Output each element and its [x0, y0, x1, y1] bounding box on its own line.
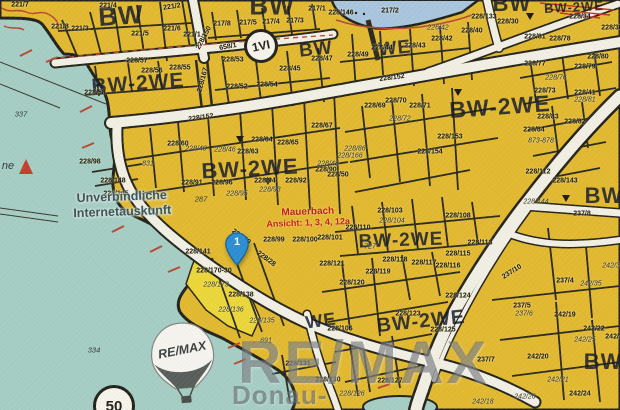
parcel-label: 242/23: [605, 334, 620, 341]
parcel-label: 228/96: [211, 180, 232, 187]
parcel-label: 221/6: [163, 26, 181, 33]
parcel-label: 217/2: [381, 8, 399, 15]
circle-marker: 50: [93, 385, 135, 410]
parcel-label: 242/25: [574, 337, 595, 344]
parcel-label: 228/98: [79, 159, 100, 166]
parcel-label: 228/130: [315, 377, 340, 384]
parcel-label: 228/100: [292, 237, 317, 244]
parcel-label: 228/78: [549, 36, 570, 43]
parcel-label: 228/117: [412, 260, 437, 267]
parcel-label: 228/138: [228, 292, 253, 299]
parcel-label: 217/5: [239, 20, 257, 27]
parcel-label: 228/34: [569, 14, 590, 21]
parcel-label: 221/5: [131, 31, 149, 38]
parcel-label: 228/106: [327, 326, 352, 333]
parcel-label: 228/63: [237, 149, 258, 156]
parcel-label: 228/55: [169, 65, 190, 72]
parcel-label: 873-878: [528, 138, 554, 145]
zone-label: BW: [585, 183, 620, 209]
parcel-label: 228/152: [188, 113, 214, 123]
parcel-label: 228/72: [389, 116, 410, 123]
water-label: 287: [195, 195, 208, 204]
parcel-label: 228/64: [251, 137, 272, 144]
parcel-label: 228/120: [339, 280, 364, 287]
parcel-label: 228/28: [255, 250, 276, 268]
parcel-label: 228/146: [328, 10, 353, 17]
parcel-label: 228/143: [552, 178, 577, 185]
disclaimer-text: Unverbindliche Internetauskunft: [73, 188, 172, 220]
parcel-label: 228/144: [523, 199, 548, 206]
parcel-label: 228/41: [574, 90, 595, 97]
parcel-label: 228/94: [254, 178, 275, 185]
parcel-label: 242/18: [472, 399, 493, 406]
parcel-label: 217/8: [213, 21, 231, 28]
parcel-label: 228/112: [526, 169, 551, 176]
parcel-label: 228/43: [404, 43, 425, 50]
parcel-label: 228/104: [379, 218, 404, 225]
parcel-label: 228/54: [256, 82, 277, 89]
mauerbach-note: Mauerbach Ansicht: 1, 3, 4, 12a: [266, 205, 350, 229]
parcel-label: 228/148: [100, 178, 125, 185]
parcel-label: 242/19: [554, 312, 575, 319]
disclaimer-line2: Internetauskunft: [73, 202, 171, 219]
parcel-label: 237/5: [513, 303, 531, 310]
parcel-label: 228/67: [311, 123, 332, 130]
parcel-label: 242/20: [527, 354, 548, 361]
parcel-label: 228/65: [277, 140, 298, 147]
parcel-label: 228/45: [279, 66, 300, 73]
parcel-label: 228/79: [574, 64, 595, 71]
parcel-label: 228/49: [347, 52, 368, 59]
parcel-label: 228/57: [126, 58, 147, 65]
cadastral-map: BWBWBWWEBWBW-2WEBW-2WEBW-2WEBW-2WEBW-2WE…: [0, 0, 620, 410]
parcel-label: 228/121: [319, 261, 344, 268]
parcel-label: 221/4: [99, 3, 117, 10]
parcel-label: 228/40: [185, 146, 206, 153]
parcel-label: 228/93: [259, 187, 280, 194]
remax-balloon-logo: RE/MAX: [147, 320, 219, 406]
parcel-label: 237/7: [477, 357, 495, 364]
parcel-label: 228/70: [385, 98, 406, 105]
parcel-label: 228/80: [587, 54, 608, 61]
parcel-label: 242/26: [514, 394, 535, 401]
parcel-label: 228/119: [366, 269, 391, 276]
parcel-label: 228/124: [445, 293, 470, 300]
parcel-label: 228/91: [181, 180, 202, 187]
parcel-label: 237/6: [515, 311, 533, 318]
parcel-label: 228/52: [226, 84, 247, 91]
parcel-label: 228/44: [371, 45, 392, 52]
parcel-label: 228/141: [185, 249, 210, 256]
parcel-label: 228/95: [226, 191, 247, 198]
parcel-label: 228/153: [437, 134, 462, 141]
parcel-label: 228/73: [534, 88, 555, 95]
zone-label: BW-: [584, 349, 620, 375]
parcel-label: 228/81: [574, 97, 595, 104]
parcel-label: 242/22: [583, 326, 604, 333]
water-label: ne: [2, 160, 14, 172]
parcel-label: 242/24: [569, 391, 590, 398]
parcel-label: 242/35: [580, 281, 601, 288]
parcel-label: 228/133: [471, 14, 496, 21]
parcel-label: 228/123: [395, 311, 420, 318]
parcel-label: 242/21: [547, 377, 568, 384]
parcel-label: 228/40: [461, 28, 482, 35]
parcel-label: 228/154: [417, 149, 442, 156]
parcel-label: 228/92: [285, 178, 306, 185]
parcel-label: 228/30: [497, 19, 518, 26]
parcel-label: 228/131: [285, 361, 310, 368]
parcel-label: 658/1: [219, 42, 237, 52]
parcel-label: 237/10: [501, 263, 523, 280]
parcel-label: 228/58: [84, 90, 105, 97]
parcel-label: 228/36: [601, 25, 620, 32]
pin-number: 1: [225, 236, 249, 248]
parcel-label: 228/170-30: [196, 268, 231, 275]
parcel-label: 221/1: [183, 32, 201, 39]
parcel-label: 228/103: [377, 208, 402, 215]
parcel-label: 228/167: [196, 67, 209, 93]
water-label: 334: [88, 346, 101, 355]
parcel-label: 228/108: [445, 213, 470, 220]
parcel-label: 237/8: [573, 211, 591, 218]
parcel-label: 228/127: [377, 378, 402, 385]
location-pin[interactable]: 1: [225, 232, 249, 266]
parcel-label: 228/69: [364, 103, 385, 110]
water-label: 337: [15, 110, 28, 119]
parcel-label: 228/48: [317, 161, 338, 168]
parcel-label: 217/1: [308, 6, 326, 13]
parcel-label: 228/136: [218, 307, 243, 314]
parcel-label: 228/86: [344, 146, 365, 153]
parcel-label: 228/53: [222, 57, 243, 64]
parcel-label: 221/8: [51, 24, 69, 31]
parcel-label: 237/4: [556, 278, 574, 285]
parcel-label: 228/47: [311, 56, 332, 63]
parcel-label: 228/135: [249, 318, 274, 325]
parcel-label: 217/4: [262, 19, 280, 26]
parcel-label: 228/118: [383, 257, 408, 264]
parcel-label: 226/42: [427, 25, 448, 32]
parcel-label: 228/77: [524, 61, 545, 68]
parcel-label: 228/42: [431, 36, 452, 43]
parcel-label: 831: [142, 161, 154, 168]
parcel-label: 228/101: [317, 235, 342, 242]
parcel-label: 228/166: [337, 153, 362, 160]
parcel-label: 228/115: [446, 251, 471, 258]
parcel-label: 228/83: [537, 114, 558, 121]
circle-marker: 1VI: [244, 29, 278, 63]
parcel-label: 228/152: [379, 73, 405, 83]
zone-label: BW: [493, 0, 532, 17]
parcel-label: 221/7: [11, 2, 29, 9]
parcel-label: 221/2: [163, 2, 181, 11]
parcel-label: 228/46: [214, 147, 235, 154]
parcel-label: 691: [260, 338, 272, 345]
parcel-label: 242/36: [602, 263, 620, 270]
parcel-label: 228/116: [436, 263, 461, 270]
parcel-label: 228/82: [564, 119, 585, 126]
parcel-label: 228/84: [523, 127, 544, 134]
parcel-label: 228/50: [327, 172, 348, 179]
parcel-label: 228/56: [141, 68, 162, 75]
parcel-label: 228/99: [263, 237, 284, 244]
parcel-label: 228/125: [430, 327, 455, 334]
parcel-label: 727: [364, 244, 376, 251]
parcel-label: 228/76: [545, 75, 566, 82]
zone-label: BW-2WE: [449, 90, 552, 124]
parcel-label: 217/3: [286, 18, 304, 25]
parcel-label: 228/71: [409, 103, 430, 110]
parcel-label: 221/3: [71, 26, 89, 33]
parcel-label: 228/126: [339, 391, 364, 398]
parcel-label: 228/173: [203, 282, 228, 289]
parcel-label: 228/81: [524, 34, 545, 41]
parcel-label: 228/113: [468, 240, 493, 247]
